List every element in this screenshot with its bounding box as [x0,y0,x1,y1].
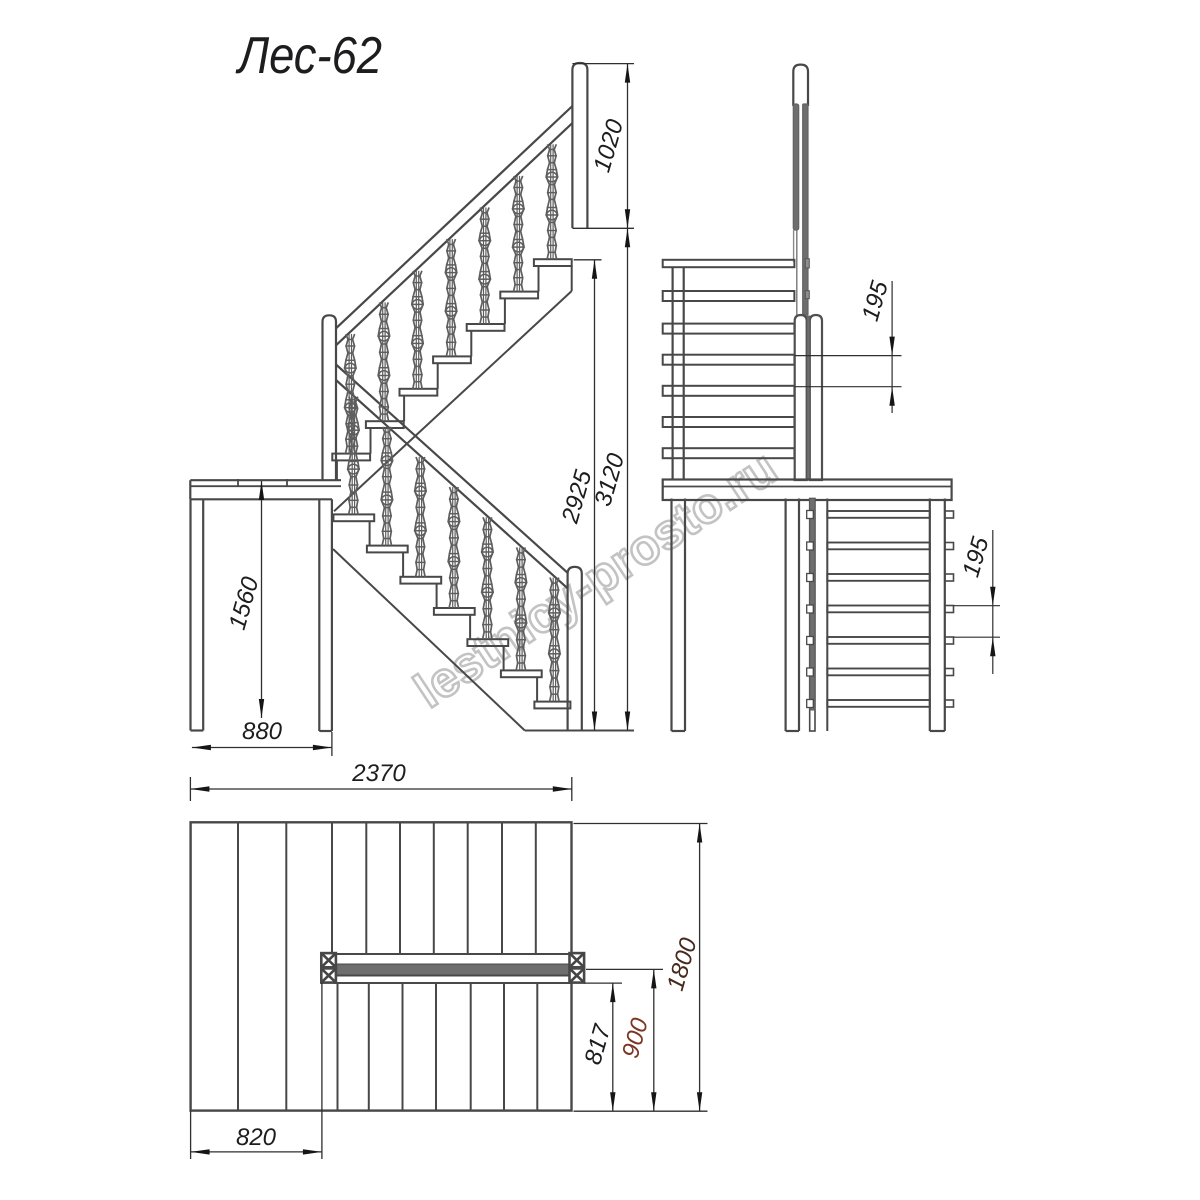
svg-text:1800: 1800 [662,934,703,993]
svg-text:900: 900 [617,1015,654,1062]
svg-text:195: 195 [957,534,994,581]
svg-text:820: 820 [236,1124,277,1151]
svg-text:880: 880 [242,718,283,745]
svg-text:817: 817 [579,1020,616,1068]
svg-text:2370: 2370 [351,760,406,787]
svg-text:195: 195 [857,278,894,325]
svg-text:Лес-62: Лес-62 [235,27,382,85]
svg-text:1560: 1560 [224,573,265,632]
svg-text:1020: 1020 [588,116,629,175]
